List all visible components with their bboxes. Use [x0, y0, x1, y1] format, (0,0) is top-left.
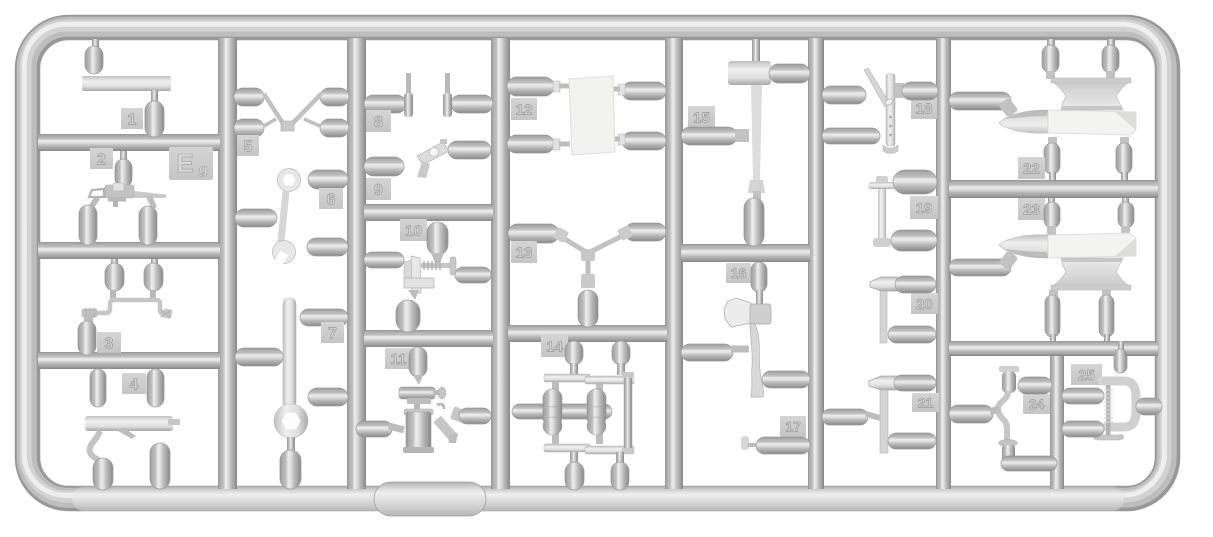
svg-text:25: 25 [1078, 367, 1095, 384]
svg-text:7: 7 [328, 325, 337, 342]
svg-text:12: 12 [516, 101, 533, 118]
svg-text:21: 21 [918, 395, 934, 411]
svg-text:17: 17 [785, 419, 801, 435]
svg-text:16: 16 [731, 265, 747, 281]
svg-text:g: g [199, 161, 208, 177]
svg-text:E: E [176, 148, 193, 178]
svg-text:15: 15 [693, 109, 710, 126]
svg-text:14: 14 [546, 338, 563, 355]
svg-text:1: 1 [128, 111, 137, 128]
svg-text:13: 13 [516, 244, 533, 261]
svg-text:24: 24 [1029, 396, 1045, 412]
svg-text:5: 5 [244, 138, 253, 155]
svg-text:3: 3 [105, 335, 114, 352]
svg-text:11: 11 [391, 351, 407, 368]
svg-text:19: 19 [916, 200, 933, 217]
svg-text:23: 23 [1023, 201, 1040, 218]
svg-text:20: 20 [916, 296, 933, 313]
svg-text:6: 6 [327, 191, 336, 208]
svg-text:4: 4 [130, 376, 139, 393]
svg-text:22: 22 [1023, 160, 1040, 177]
svg-text:9: 9 [374, 182, 383, 199]
svg-text:10: 10 [405, 222, 422, 239]
svg-text:18: 18 [916, 100, 933, 117]
svg-text:8: 8 [374, 114, 383, 131]
svg-text:2: 2 [97, 151, 106, 168]
